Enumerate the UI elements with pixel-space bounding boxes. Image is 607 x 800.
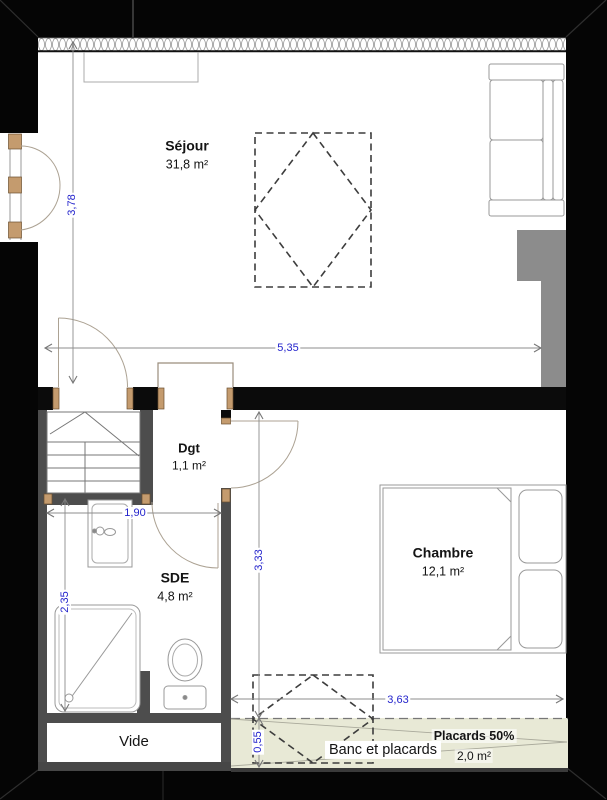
room-name-sde: SDE [157, 569, 192, 587]
room-name-sejour: Séjour [165, 137, 209, 155]
dimension-placards-width: 3,63 [385, 694, 410, 706]
room-name-chambre: Chambre [413, 544, 474, 562]
dimension-sde-width: 1,90 [122, 507, 147, 519]
room-area-sde: 4,8 m² [157, 589, 192, 605]
insulated-wall-north [38, 38, 566, 52]
dimension-chambre-height: 3,33 [253, 547, 265, 572]
room-label-sejour: Séjour 31,8 m² [165, 137, 209, 172]
room-label-chambre: Chambre 12,1 m² [413, 544, 474, 579]
sofa [489, 64, 564, 216]
stairs [47, 412, 140, 493]
floor-plan: Séjour 31,8 m² Dgt 1,1 m² SDE 4,8 m² Cha… [0, 0, 607, 800]
placards-area: 2,0 m² [455, 749, 493, 763]
dimension-sde-height: 2,35 [59, 589, 71, 614]
room-name-dgt: Dgt [172, 440, 206, 456]
dimension-placards-height: 0,55 [252, 729, 264, 754]
room-label-sde: SDE 4,8 m² [157, 569, 192, 604]
room-label-vide: Vide [119, 732, 149, 752]
room-name-vide: Vide [119, 733, 149, 750]
bench-closets-label: Banc et placards [325, 741, 441, 759]
dimension-sejour-height: 3,78 [66, 192, 78, 217]
room-area-chambre: 12,1 m² [413, 564, 474, 580]
room-label-dgt: Dgt 1,1 m² [172, 440, 206, 473]
dimension-sejour-width: 5,35 [275, 342, 300, 354]
room-area-sejour: 31,8 m² [165, 157, 209, 173]
placards-label: Placards 50% 2,0 m² [432, 726, 517, 766]
placards-title: Placards 50% [432, 729, 517, 743]
room-area-dgt: 1,1 m² [172, 459, 206, 474]
floor-plan-drawing [0, 0, 607, 800]
shower [55, 605, 140, 712]
